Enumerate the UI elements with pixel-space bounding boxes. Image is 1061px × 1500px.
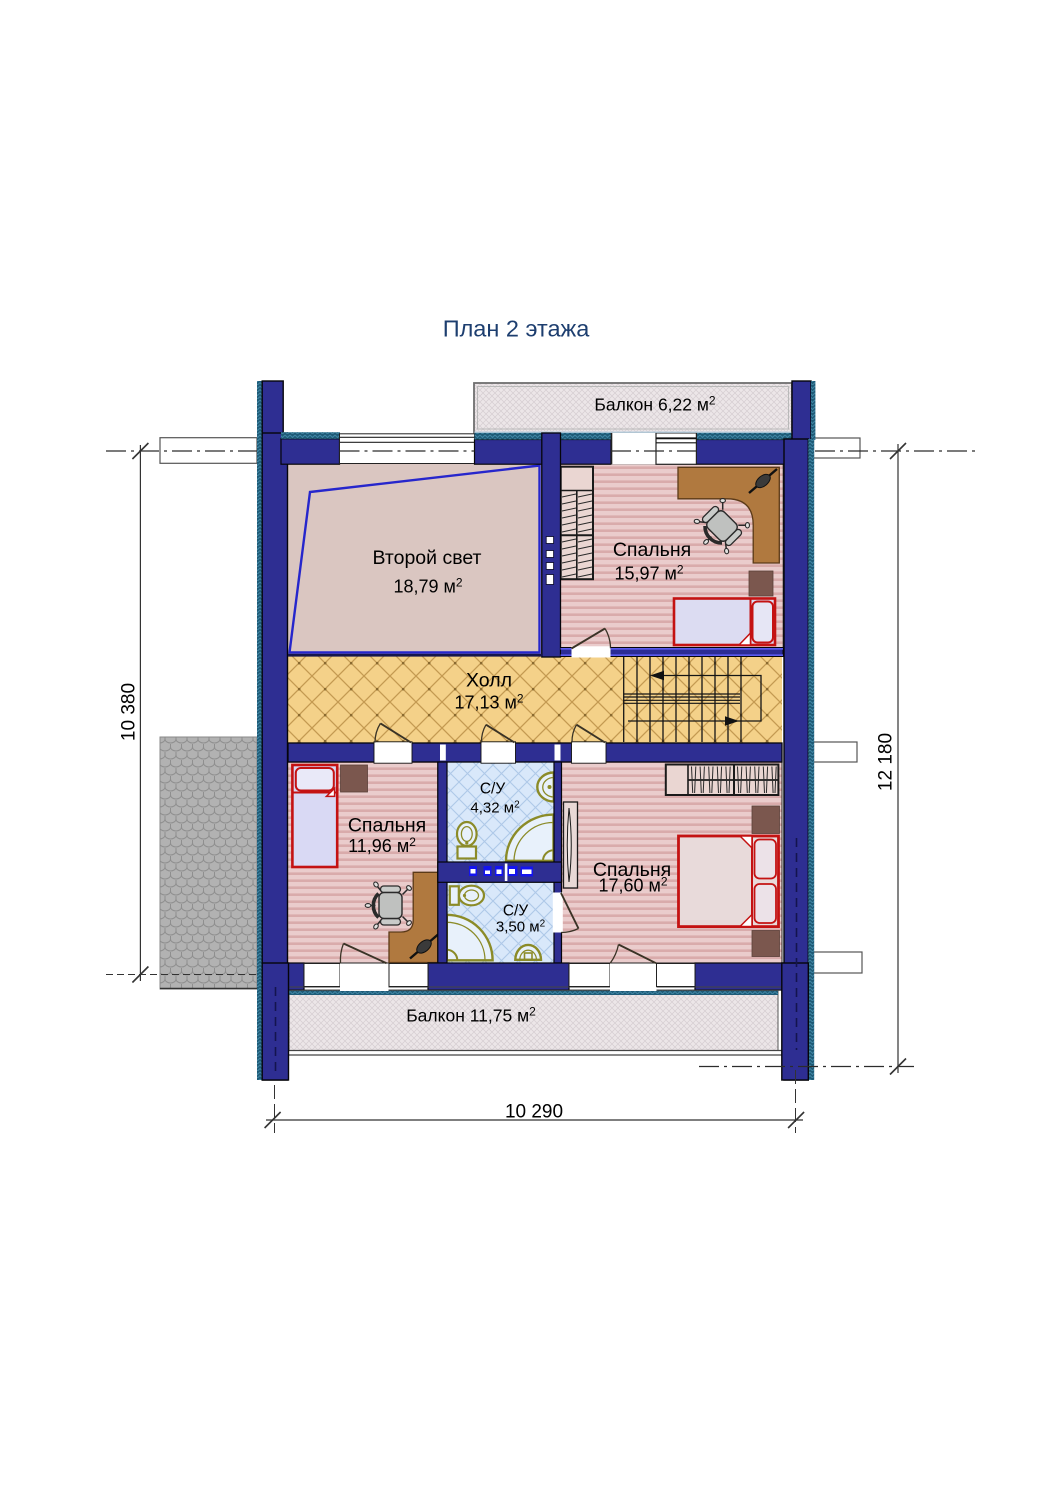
svg-text:17,13 м2: 17,13 м2 (454, 692, 523, 713)
svg-text:11,96 м2: 11,96 м2 (348, 835, 416, 856)
svg-text:3,50 м2: 3,50 м2 (496, 919, 546, 936)
svg-text:Спальня: Спальня (613, 539, 691, 561)
svg-text:План 2 этажа: План 2 этажа (443, 316, 591, 342)
svg-text:4,32 м2: 4,32 м2 (470, 800, 520, 817)
svg-text:10 290: 10 290 (505, 1102, 563, 1123)
svg-text:Балкон 6,22 м2: Балкон 6,22 м2 (594, 394, 716, 415)
svg-text:Балкон 11,75 м2: Балкон 11,75 м2 (406, 1005, 536, 1026)
svg-text:17,60 м2: 17,60 м2 (598, 875, 667, 896)
svg-text:12 180: 12 180 (876, 733, 897, 791)
svg-text:18,79 м2: 18,79 м2 (393, 576, 462, 597)
svg-text:Холл: Холл (466, 670, 512, 692)
svg-text:Второй свет: Второй свет (373, 547, 482, 569)
svg-text:10 380: 10 380 (119, 683, 140, 741)
svg-text:С/У: С/У (503, 903, 529, 920)
svg-text:15,97 м2: 15,97 м2 (614, 563, 683, 584)
svg-text:Спальня: Спальня (348, 815, 426, 837)
svg-text:С/У: С/У (480, 781, 506, 798)
